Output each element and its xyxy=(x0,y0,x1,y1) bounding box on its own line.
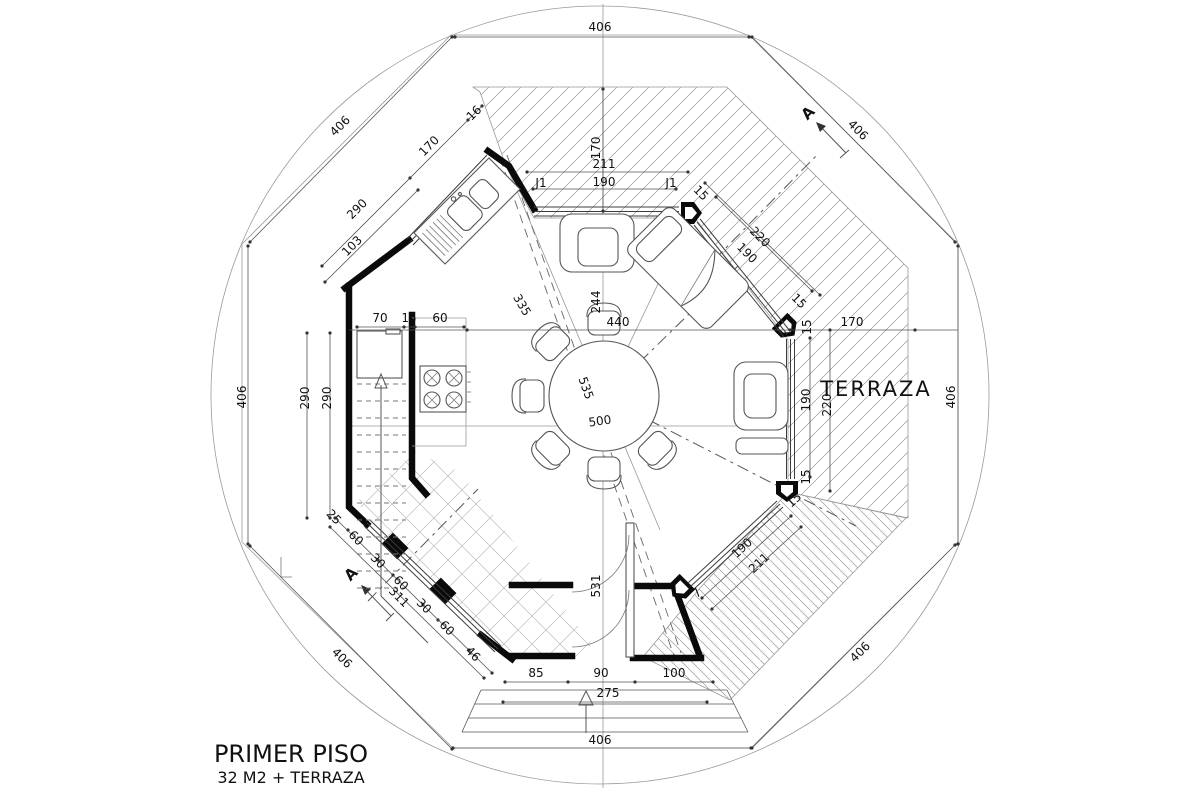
dim-531: 531 xyxy=(589,575,603,598)
section-label-a-bottom: A xyxy=(341,563,362,584)
armchair-right xyxy=(734,362,788,454)
fridge xyxy=(357,329,402,378)
section-label-a-top: A xyxy=(798,102,819,123)
chair xyxy=(512,379,544,413)
section-arrow-top-right: A xyxy=(798,102,849,158)
dim-bracket xyxy=(281,557,292,577)
dim-170-nw: 170 xyxy=(416,133,442,159)
dim-440: 440 xyxy=(607,315,630,329)
dim-15-east-bottom: 15 xyxy=(799,469,813,484)
dim-406-bottom: 406 xyxy=(589,733,612,747)
dim-244: 244 xyxy=(589,291,603,314)
window-tag-j1-right: J1 xyxy=(664,176,676,190)
dim-290-nw: 290 xyxy=(344,196,370,222)
window-tag-j1-left: J1 xyxy=(534,176,546,190)
dim-406-bottomright: 406 xyxy=(847,639,873,665)
dim-103-nw: 103 xyxy=(339,233,365,259)
dim-190-top: 190 xyxy=(593,175,616,189)
dim-406-topright: 406 xyxy=(845,117,871,143)
dim-15-east-top: 15 xyxy=(800,319,814,334)
door-leaf xyxy=(626,523,634,657)
dim-335: 335 xyxy=(510,292,534,319)
dim-190-east: 190 xyxy=(799,389,813,412)
kitchen-sink-counter xyxy=(414,158,520,264)
floor-plan-page: A A xyxy=(0,0,1200,800)
dim-290-west-2: 290 xyxy=(320,387,334,410)
dim-85: 85 xyxy=(528,666,543,680)
dim-275: 275 xyxy=(597,686,620,700)
armchair-top xyxy=(560,214,634,272)
plan-subtitle: 32 M2 + TERRAZA xyxy=(217,768,364,787)
dim-15-kitchen: 15 xyxy=(401,311,416,325)
dim-70: 70 xyxy=(372,311,387,325)
dim-290-west-1: 290 xyxy=(298,387,312,410)
dim-406-topleft: 406 xyxy=(327,113,353,139)
terraza-label: TERRAZA xyxy=(819,377,932,401)
plan-title: PRIMER PISO xyxy=(214,740,368,768)
wall-west xyxy=(349,286,367,524)
entry-direction-arrow xyxy=(579,691,593,705)
dim-406-top: 406 xyxy=(589,20,612,34)
dim-170-right: 170 xyxy=(841,315,864,329)
dim-60-kitchen: 60 xyxy=(432,311,447,325)
dim-100: 100 xyxy=(663,666,686,680)
dim-211-top: 211 xyxy=(593,157,616,171)
floor-plan-svg: A A xyxy=(0,0,1200,800)
dim-90: 90 xyxy=(593,666,608,680)
round-table xyxy=(549,341,659,451)
chair xyxy=(587,457,621,489)
dim-406-right: 406 xyxy=(944,386,958,409)
dim-406-left: 406 xyxy=(235,386,249,409)
stove xyxy=(420,366,471,412)
entry-tile-floor xyxy=(356,452,590,661)
dim-311-sw: 311 xyxy=(386,584,412,610)
footrest xyxy=(736,438,788,454)
